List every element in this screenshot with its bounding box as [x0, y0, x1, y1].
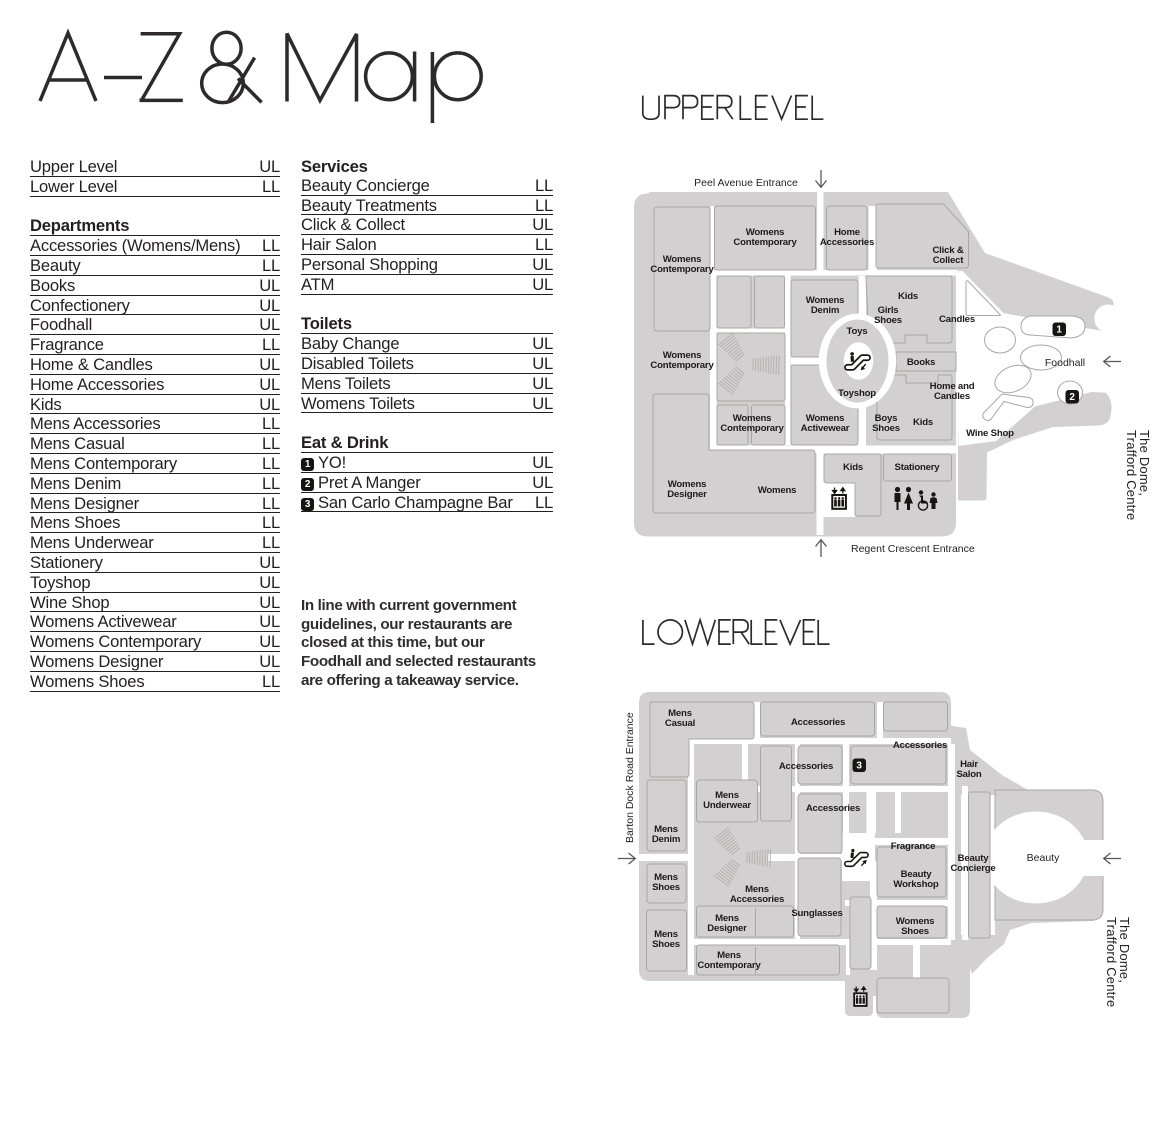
svg-text:Toyshop: Toyshop — [838, 388, 876, 399]
svg-text:Sunglasses: Sunglasses — [791, 908, 842, 919]
svg-text:Shoes: Shoes — [652, 882, 680, 893]
svg-text:Toys: Toys — [847, 326, 868, 337]
svg-text:Collect: Collect — [933, 255, 965, 266]
svg-text:Denim: Denim — [652, 834, 680, 845]
svg-text:Stationery: Stationery — [895, 462, 941, 473]
svg-text:Designer: Designer — [707, 923, 747, 934]
svg-text:Concierge: Concierge — [950, 863, 995, 874]
svg-text:Accessories: Accessories — [806, 803, 860, 814]
svg-text:Beauty: Beauty — [1027, 852, 1060, 864]
svg-text:Workshop: Workshop — [893, 879, 938, 890]
svg-text:Designer: Designer — [667, 489, 707, 500]
svg-text:Accessories: Accessories — [893, 740, 947, 751]
svg-text:Activewear: Activewear — [801, 423, 850, 434]
svg-text:Contemporary: Contemporary — [650, 264, 714, 275]
svg-text:Books: Books — [907, 357, 935, 368]
svg-text:Accessories: Accessories — [779, 761, 833, 772]
svg-text:3: 3 — [856, 761, 862, 772]
svg-text:Underwear: Underwear — [703, 800, 751, 811]
svg-text:1: 1 — [1056, 325, 1062, 336]
svg-text:Candles: Candles — [939, 314, 975, 325]
svg-text:Contemporary: Contemporary — [733, 237, 797, 248]
svg-text:Trafford Centre: Trafford Centre — [1104, 917, 1119, 1007]
svg-text:Trafford Centre: Trafford Centre — [1124, 430, 1139, 520]
svg-text:2: 2 — [1069, 392, 1075, 403]
svg-text:Accessories: Accessories — [791, 717, 845, 728]
svg-text:Shoes: Shoes — [872, 423, 900, 434]
svg-text:Contemporary: Contemporary — [697, 960, 761, 971]
svg-text:Denim: Denim — [811, 305, 839, 316]
svg-text:Shoes: Shoes — [652, 939, 680, 950]
svg-text:Peel Avenue Entrance: Peel Avenue Entrance — [694, 177, 798, 189]
svg-text:Barton Dock Road Entrance: Barton Dock Road Entrance — [624, 712, 636, 843]
svg-text:Shoes: Shoes — [901, 926, 929, 937]
svg-text:Casual: Casual — [665, 718, 695, 729]
svg-text:Wine Shop: Wine Shop — [966, 428, 1014, 439]
svg-text:Accessories: Accessories — [820, 237, 874, 248]
svg-text:Kids: Kids — [913, 417, 933, 428]
svg-text:Womens: Womens — [758, 485, 797, 496]
svg-text:Shoes: Shoes — [874, 315, 902, 326]
svg-text:Kids: Kids — [843, 462, 863, 473]
svg-text:Foodhall: Foodhall — [1045, 357, 1085, 369]
svg-text:Fragrance: Fragrance — [891, 841, 936, 852]
svg-text:Kids: Kids — [898, 291, 918, 302]
svg-text:Candles: Candles — [934, 391, 970, 402]
svg-text:Contemporary: Contemporary — [720, 423, 784, 434]
svg-text:Accessories: Accessories — [730, 894, 784, 905]
svg-text:Contemporary: Contemporary — [650, 360, 714, 371]
svg-text:Regent Crescent Entrance: Regent Crescent Entrance — [851, 543, 975, 555]
svg-text:Salon: Salon — [956, 769, 981, 780]
